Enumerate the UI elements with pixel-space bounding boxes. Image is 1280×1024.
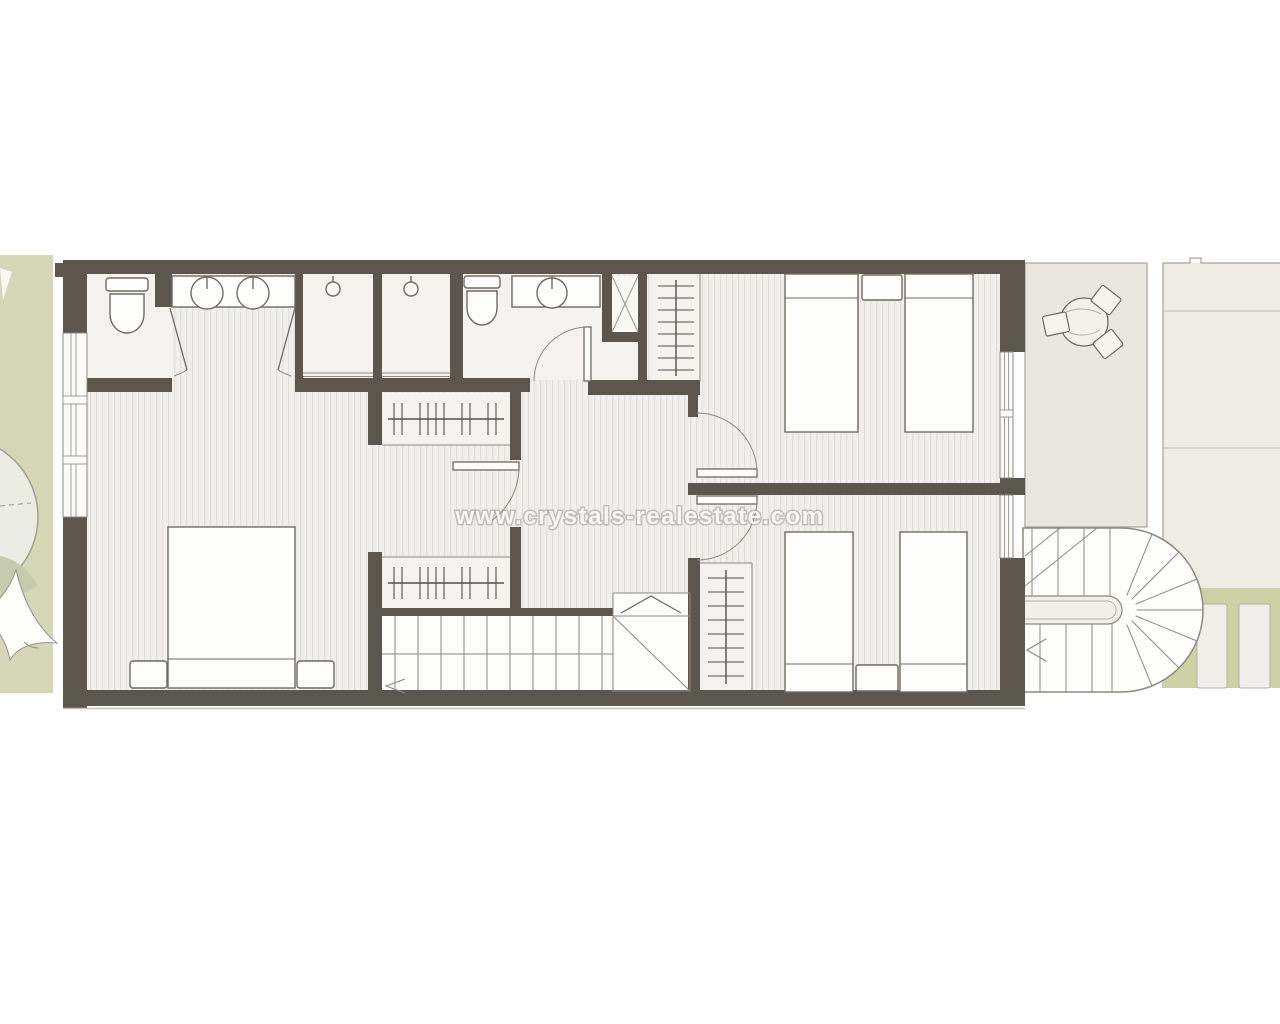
wall-segment — [368, 608, 613, 616]
shower-room-floor — [602, 342, 638, 380]
floor-plan-drawing: www.crystals-realestate.com — [0, 0, 1280, 1024]
wall-segment — [368, 387, 382, 445]
wall-segment — [63, 260, 87, 333]
nightstand-icon — [130, 661, 167, 688]
single-bed-icon — [900, 532, 967, 692]
paved-passage — [1163, 263, 1280, 588]
window-mullion — [63, 396, 87, 404]
window-right-bedroom2 — [1000, 352, 1013, 478]
wall-segment — [588, 380, 700, 395]
exterior-curved-staircase — [1023, 528, 1203, 692]
wall-segment — [510, 527, 521, 616]
stepping-stone — [1239, 604, 1270, 688]
nightstand-icon — [862, 275, 902, 300]
stair-center-rail — [1025, 596, 1122, 624]
toilet-icon — [464, 276, 500, 325]
toilet-icon — [106, 278, 148, 333]
window-frame — [63, 333, 87, 517]
single-bed-icon — [785, 274, 858, 432]
wall-segment — [1000, 260, 1025, 352]
wall-segment — [295, 378, 530, 392]
shower-head-icon — [326, 282, 340, 296]
nightstand-icon — [856, 665, 898, 691]
wall-segment — [688, 385, 698, 417]
garden-left — [0, 255, 57, 693]
single-bed-icon — [905, 274, 973, 432]
window-mullion — [63, 456, 87, 464]
wall-segment — [602, 332, 638, 342]
wall-segment — [450, 274, 463, 378]
wall-segment — [87, 378, 172, 392]
wall-segment — [638, 274, 647, 382]
wall-segment — [1000, 558, 1025, 706]
double-bed-icon — [168, 527, 295, 688]
chair-icon — [1042, 312, 1070, 337]
single-bed-icon — [785, 532, 853, 692]
wall-segment — [55, 263, 63, 277]
wall-segment — [63, 260, 1025, 274]
watermark: www.crystals-realestate.com — [454, 503, 824, 530]
wall-segment — [373, 274, 382, 378]
wall-segment — [368, 552, 382, 690]
wall-segment — [295, 274, 303, 378]
wall-segment — [155, 274, 172, 307]
nightstand-icon — [297, 661, 334, 688]
wall-segment — [63, 517, 87, 708]
wall-segment — [63, 690, 1025, 706]
wall-segment — [510, 387, 521, 460]
stair-landing-floor — [613, 593, 690, 690]
window-frame — [1000, 495, 1013, 558]
window-mullion — [1000, 410, 1013, 417]
floor-plan-page: www.crystals-realestate.com — [0, 0, 1280, 1024]
window-left — [63, 333, 87, 517]
wall-segment — [688, 483, 1012, 495]
terrace — [1025, 263, 1147, 527]
shower-head-icon — [404, 282, 418, 296]
window-right-bedroom3 — [1000, 495, 1013, 558]
wall-segment — [602, 274, 612, 342]
stair-flight-floor — [382, 616, 613, 690]
